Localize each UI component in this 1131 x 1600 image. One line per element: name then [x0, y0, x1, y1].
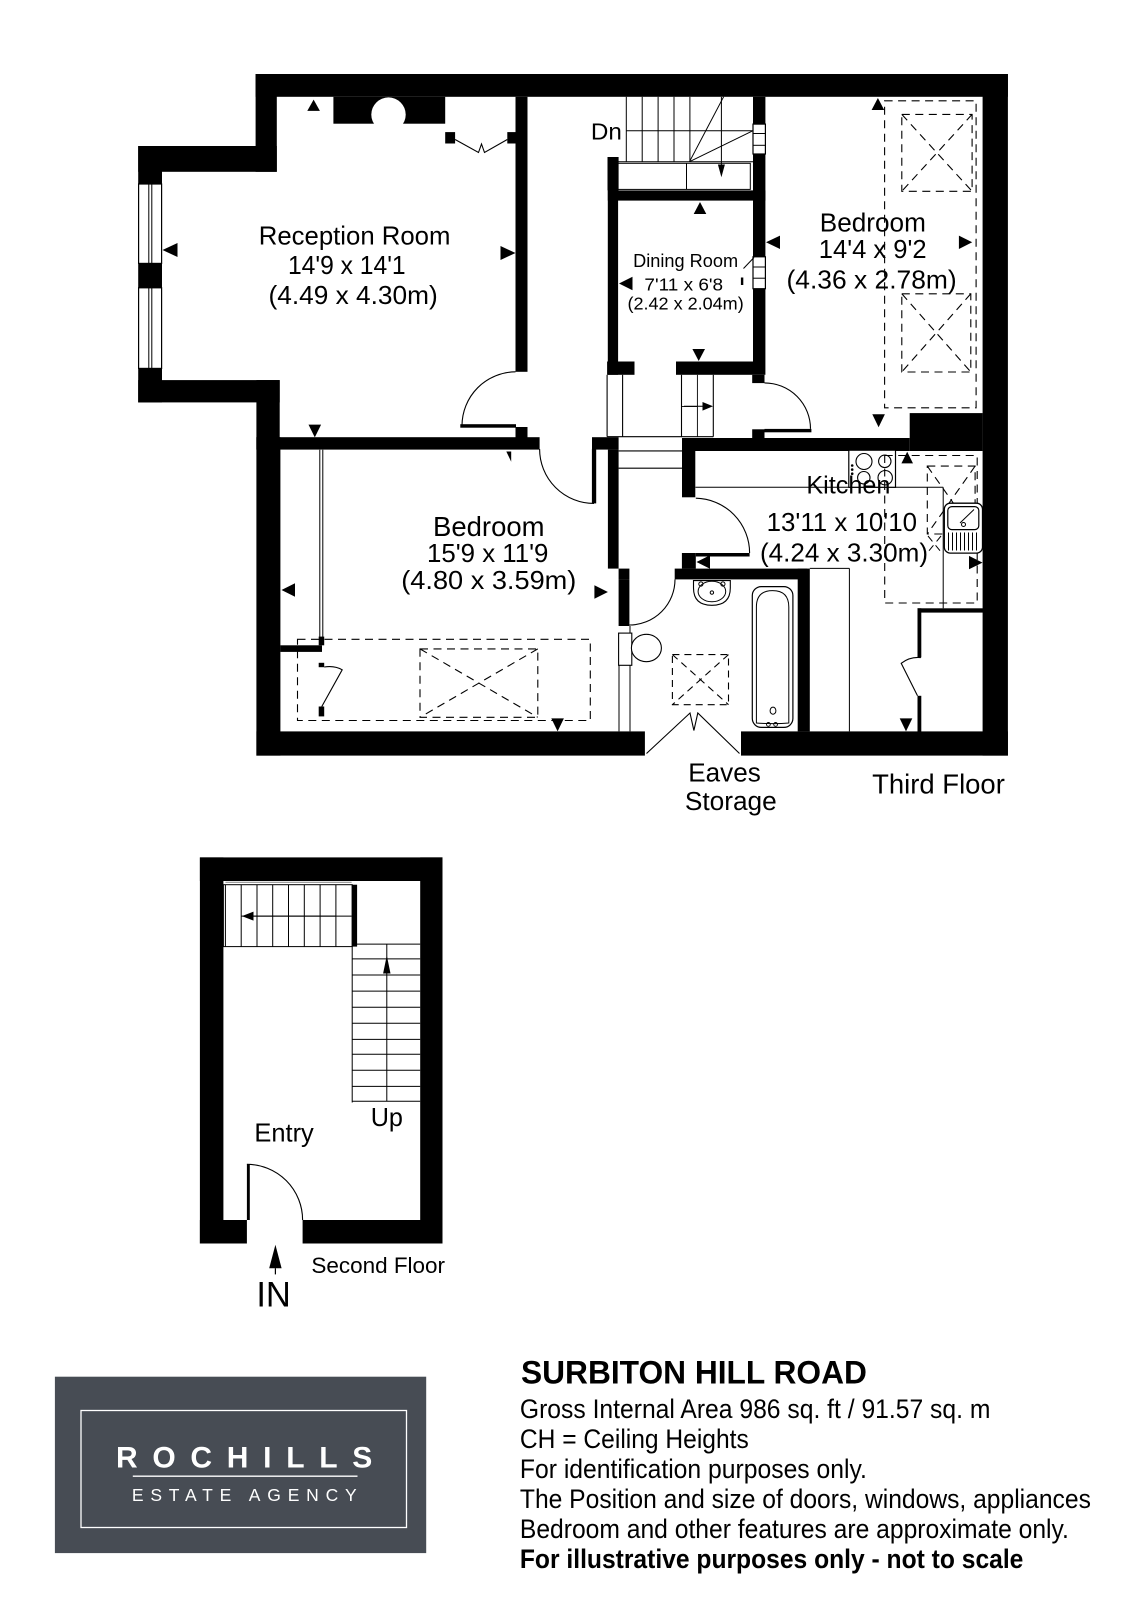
- svg-text:(4.49 x 4.30m): (4.49 x 4.30m): [269, 282, 438, 310]
- svg-text:IN: IN: [256, 1276, 291, 1315]
- svg-text:For identification purposes on: For identification purposes only.: [520, 1454, 867, 1484]
- svg-text:(4.24 x 3.30m): (4.24 x 3.30m): [760, 540, 928, 568]
- svg-text:For illustrative purposes only: For illustrative purposes only - not to …: [520, 1544, 1024, 1574]
- svg-text:Bedroom and other features are: Bedroom and other features are approxima…: [520, 1514, 1069, 1544]
- svg-text:Storage: Storage: [685, 786, 777, 816]
- svg-text:14'4 x 9'2: 14'4 x 9'2: [819, 236, 927, 264]
- svg-text:15'9 x 11'9: 15'9 x 11'9: [427, 540, 548, 568]
- svg-text:(2.42 x 2.04m): (2.42 x 2.04m): [628, 293, 744, 313]
- svg-text:ESTATE AGENCY: ESTATE AGENCY: [132, 1485, 364, 1505]
- svg-text:Eaves: Eaves: [688, 757, 761, 787]
- svg-text:7'11 x 6'8: 7'11 x 6'8: [644, 275, 723, 295]
- svg-text:Dining Room: Dining Room: [633, 251, 738, 271]
- svg-text:ROCHILLS: ROCHILLS: [116, 1442, 387, 1475]
- svg-text:Up: Up: [371, 1104, 403, 1132]
- svg-text:Second Floor: Second Floor: [311, 1253, 445, 1278]
- svg-text:The Position and size of doors: The Position and size of doors, windows,…: [520, 1484, 1091, 1514]
- svg-text:Entry: Entry: [254, 1120, 314, 1148]
- svg-text:SURBITON HILL ROAD: SURBITON HILL ROAD: [521, 1354, 867, 1390]
- svg-text:(4.36 x 2.78m): (4.36 x 2.78m): [787, 267, 957, 295]
- svg-text:Bedroom: Bedroom: [433, 511, 545, 542]
- svg-text:CH = Ceiling Heights: CH = Ceiling Heights: [520, 1424, 749, 1454]
- svg-text:(4.80 x 3.59m): (4.80 x 3.59m): [401, 567, 576, 595]
- svg-text:Kitchen: Kitchen: [806, 472, 890, 500]
- svg-text:Bedroom: Bedroom: [820, 207, 926, 237]
- svg-text:Third Floor: Third Floor: [872, 768, 1005, 799]
- svg-text:13'11 x 10'10: 13'11 x 10'10: [767, 509, 917, 537]
- svg-text:Reception Room: Reception Room: [259, 223, 451, 251]
- svg-text:Dn: Dn: [591, 119, 622, 145]
- svg-text:14'9 x 14'1: 14'9 x 14'1: [288, 252, 406, 280]
- svg-text:Gross Internal Area 986 sq. ft: Gross Internal Area 986 sq. ft / 91.57 s…: [520, 1394, 991, 1424]
